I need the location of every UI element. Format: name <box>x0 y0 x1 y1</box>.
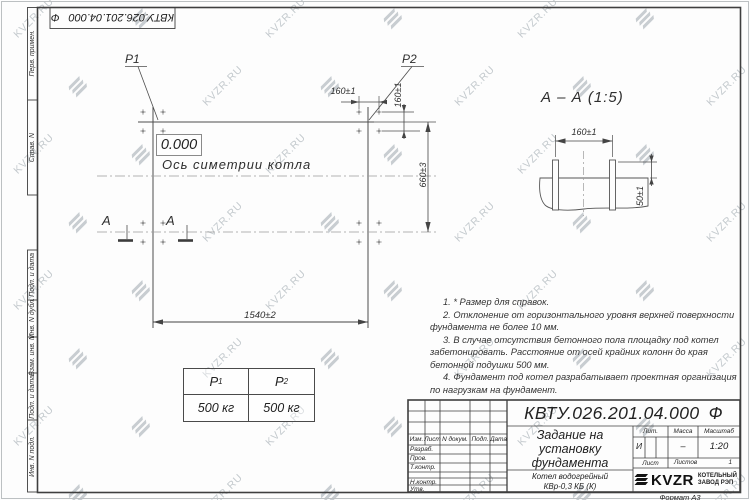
sidebar-cell-perv-primen: Перв. примен. <box>27 7 37 100</box>
dim-foundation-length: 1540±2 <box>210 310 310 321</box>
dim-bolt-spacing-v: 160±1 <box>392 75 404 115</box>
role-razrab: Разраб. <box>410 446 433 453</box>
sidebar-label: Перв. примен. <box>29 30 36 77</box>
section-letter-left: А <box>102 213 111 228</box>
product-name-line: Котел водогрейный <box>509 472 631 481</box>
mass-header: Масса <box>668 428 698 435</box>
role-utv: Утв. <box>410 486 425 493</box>
sidebar-cell-vzam-inv: Взам. инв. N <box>27 337 37 373</box>
sidebar-cell-podp-data-1: Подп. и дата <box>27 250 37 300</box>
sidebar-cell-podp-data-2: Подп. и дата <box>27 373 37 420</box>
sidebar-label: Инв. N подл. <box>29 436 36 477</box>
note-item: 1. * Размер для справок. <box>430 296 744 309</box>
logo-caption-line: ЗАВОД РЭП <box>698 480 737 487</box>
dim-section-bolt-spacing: 160±1 <box>560 127 608 137</box>
note-item: 2. Отклонение от горизонтального уровня … <box>430 309 744 334</box>
dim-bolt-protrusion: 50±1 <box>634 178 646 214</box>
loads-header-sub: 1 <box>218 377 222 386</box>
company-logo: KVZR КОТЕЛЬНЫЙ ЗАВОД РЭП <box>634 469 739 491</box>
drawing-sheet: KVZR.RUKVZR.RUKVZR.RUKVZR.RUKVZR.RUKVZR.… <box>0 0 750 500</box>
loads-header-sub: 2 <box>284 377 288 386</box>
loads-header-p2: P2 <box>249 369 314 395</box>
mass-value: – <box>668 441 698 451</box>
load-point-p1-label: P1 <box>125 52 140 66</box>
kvzr-logo-icon <box>636 474 647 485</box>
drawing-linework <box>0 0 750 500</box>
rev-header-list: Лист <box>425 436 440 443</box>
product-name-line: КВр-0,3 КБ (К) <box>509 482 631 491</box>
format-label: Формат А3 <box>645 493 715 500</box>
role-nkontr: Н.контр. <box>410 479 437 486</box>
sidebar-cell-inv-dubl: Инв. N дубл. <box>27 300 37 337</box>
load-point-p2-label: P2 <box>402 52 417 66</box>
note-item: 4. Фундамент под котел разрабатывает про… <box>430 371 744 396</box>
rev-header-data: Дата <box>490 436 507 443</box>
logo-caption: КОТЕЛЬНЫЙ ЗАВОД РЭП <box>698 473 737 487</box>
loads-header-base: P <box>275 374 284 389</box>
logo-caption-line: КОТЕЛЬНЫЙ <box>698 473 737 480</box>
scale-header: Масштаб <box>698 428 740 435</box>
sheet-label: Лист <box>633 460 668 467</box>
technical-notes: 1. * Размер для справок. 2. Отклонение о… <box>430 296 744 396</box>
sheets-label: Листов <box>674 459 697 468</box>
note-item: 3. В случае отсутствия бетонного пола пл… <box>430 334 744 372</box>
section-view-title: А – А (1:5) <box>541 89 624 106</box>
title-block-doc-number: КВТУ.026.201.04.000 Ф <box>510 403 737 424</box>
sheets-row: Листов 1 <box>668 459 738 468</box>
sidebar-label: Подп. и дата <box>29 253 36 297</box>
level-value: 0.000 <box>161 137 197 153</box>
symmetry-axis-label: Ось симетрии котла <box>162 157 311 172</box>
doc-suffix: Ф <box>709 403 723 424</box>
sidebar-cell-sprav-n: Справ. N <box>27 100 37 195</box>
sidebar-label: Инв. N дубл. <box>29 298 36 339</box>
sidebar-label: Взам. инв. N <box>29 335 36 376</box>
section-letter-right: А <box>166 213 175 228</box>
doc-title-line: фундамента <box>509 456 631 470</box>
sheets-value: 1 <box>728 459 732 468</box>
stamp-doc-number: КВТУ.026.201.04.000 <box>69 12 175 24</box>
sidebar-cell-inv-podl: Инв. N подл. <box>27 420 37 492</box>
scale-value: 1:20 <box>698 441 740 452</box>
sidebar-label: Справ. N <box>29 133 36 162</box>
dim-bolt-spacing-h: 160±1 <box>328 86 358 96</box>
lit-value: И <box>633 441 645 451</box>
loads-table: P1 P2 500 кг 500 кг <box>183 368 315 422</box>
anchor-bolts-plan <box>140 109 381 244</box>
kvzr-logo-text: KVZR <box>651 472 694 489</box>
role-tkontr: Т.контр. <box>410 464 436 471</box>
loads-value-p2: 500 кг <box>249 395 314 421</box>
doc-title-line: установку <box>509 442 631 456</box>
rev-header-ndokum: N докум. <box>440 436 470 443</box>
lit-header: Лит. <box>633 428 668 435</box>
section-cut-marks <box>118 225 193 241</box>
sidebar-label: Подп. и дата <box>29 375 36 419</box>
loads-header-base: P <box>209 374 218 389</box>
rev-header-izm: Изм. <box>409 436 424 443</box>
top-stamp: КВТУ.026.201.04.000 Ф <box>50 7 175 28</box>
doc-number: КВТУ.026.201.04.000 <box>524 403 699 424</box>
loads-header-p1: P1 <box>184 369 249 395</box>
role-prov: Пров. <box>410 455 427 462</box>
dim-foundation-width: 660±3 <box>417 155 429 195</box>
loads-value-p1: 500 кг <box>184 395 249 421</box>
level-mark: 0.000 <box>156 134 202 156</box>
rev-header-podp: Подп. <box>470 436 490 443</box>
stamp-suffix: Ф <box>51 12 60 24</box>
doc-title-line: Задание на <box>509 428 631 442</box>
